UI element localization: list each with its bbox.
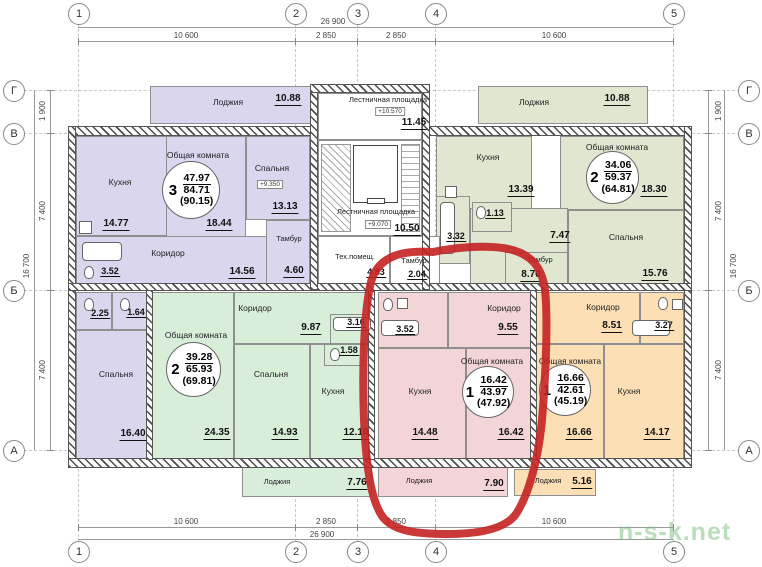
lodge-area: 5.16 — [571, 476, 592, 489]
living-area: 16.42 — [497, 427, 524, 440]
lodge-label: Лоджия — [519, 97, 549, 107]
living-area: 16.66 — [565, 427, 592, 440]
corridor-area: 7.47 — [549, 230, 570, 243]
axis-label: 1 — [76, 8, 82, 20]
tambour-area: 2.04 — [407, 269, 427, 280]
axis-col-1: 1 — [68, 3, 90, 25]
axis-row-g: Г — [3, 80, 25, 102]
stamp-living: 47.97 — [183, 173, 211, 185]
toilet-icon — [84, 266, 94, 279]
bathroom-area: 3.27 — [654, 320, 674, 331]
wall — [68, 283, 692, 291]
wc-area: 1.13 — [485, 208, 505, 219]
apartment-stamp-apt1-right: 1 16.6642.61(45.19) — [539, 364, 591, 416]
dim-seg: 10 600 — [172, 517, 200, 526]
corridor-area: 14.56 — [228, 266, 255, 279]
wall — [68, 458, 692, 468]
axis-label: А — [10, 445, 17, 457]
dimension-line — [78, 527, 673, 528]
room-bedroom2-apt3 — [76, 330, 150, 460]
stamp-living: 16.42 — [480, 375, 508, 387]
axis-col-3: 3 — [347, 541, 369, 563]
dim-tick — [295, 38, 296, 45]
dim-tick — [47, 290, 54, 291]
axis-col-5: 5 — [663, 3, 685, 25]
bath2-area: 1.64 — [126, 307, 146, 318]
lodge-area: 7.90 — [483, 478, 504, 491]
dim-seg: 2 850 — [314, 517, 338, 526]
stamp-living: 16.66 — [557, 373, 585, 385]
tambour-label: Тамбур — [276, 234, 301, 243]
stamp-rooms: 1 — [543, 382, 551, 399]
axis-row-b: Б — [738, 280, 760, 302]
tambour-label: Тамбур — [527, 255, 552, 264]
stair-tech-room — [318, 236, 390, 286]
wc-area: 2.25 — [90, 308, 110, 319]
living-label: Общая комната — [167, 150, 229, 160]
wc-area: 1.58 — [339, 345, 359, 356]
axis-label: Г — [746, 85, 752, 97]
dim-tick — [435, 524, 436, 531]
axis-label: 4 — [433, 8, 439, 20]
axis-label: Б — [745, 285, 752, 297]
stamp-with-lodge: (90.15) — [180, 196, 213, 207]
sink-icon — [672, 299, 683, 310]
dim-tick — [673, 38, 674, 45]
dim-total-top: 26 900 — [319, 17, 347, 26]
dimension-line — [78, 41, 673, 42]
axis-label: 5 — [671, 8, 677, 20]
wall — [310, 84, 430, 93]
wall — [68, 126, 76, 468]
dim-seg: 7 400 — [714, 201, 723, 221]
axis-label: 3 — [355, 8, 361, 20]
corridor-label: Коридор — [487, 303, 521, 313]
lodge-area: 10.88 — [274, 93, 301, 106]
room-corridor-apt1c — [448, 292, 536, 348]
kitchen-label: Кухня — [618, 386, 641, 396]
axis-row-a: А — [738, 440, 760, 462]
stamp-rooms: 3 — [169, 182, 177, 199]
toilet-icon — [383, 298, 393, 311]
dim-seg: 1 900 — [714, 101, 723, 121]
stamp-with-lodge: (69.81) — [183, 376, 216, 387]
axis-col-2: 2 — [285, 3, 307, 25]
dim-tick — [78, 524, 79, 531]
dimension-line — [708, 90, 709, 450]
stamp-rooms: 2 — [590, 169, 598, 186]
upper-landing-label: Лестничная площадка — [349, 95, 427, 104]
bathtub-icon — [82, 242, 122, 261]
elevation-badge: +9.350 — [257, 180, 283, 189]
dim-seg: 10 600 — [540, 517, 568, 526]
kitchen-area: 14.17 — [643, 427, 670, 440]
dim-total-right: 16 700 — [729, 254, 738, 278]
bathroom-area: 3.32 — [446, 231, 466, 242]
tambour-area: 8.70 — [520, 269, 541, 282]
floor-plan: 1 2 3 4 5 1 2 3 4 5 Г В Б А Г В Б А 26 9… — [0, 0, 762, 567]
dim-tick — [705, 290, 712, 291]
axis-row-v: В — [3, 123, 25, 145]
axis-label: А — [745, 445, 752, 457]
stamp-with-lodge: (47.92) — [477, 398, 510, 409]
wall — [530, 290, 537, 460]
bathtub-icon — [440, 202, 455, 254]
stamp-total: 65.93 — [186, 364, 212, 375]
axis-label: В — [745, 128, 752, 140]
dimension-line — [50, 90, 51, 450]
axis-label: Б — [10, 285, 17, 297]
lower-landing-label: Лестничная площадка — [337, 207, 415, 216]
dim-seg: 2 850 — [384, 31, 408, 40]
elevation-badge: +10.570 — [375, 107, 405, 116]
lodge-label: Лоджия — [213, 97, 243, 107]
axis-col-1: 1 — [68, 541, 90, 563]
stamp-with-lodge: (45.19) — [554, 396, 587, 407]
living-label: Общая комната — [461, 356, 523, 366]
dim-tick — [705, 133, 712, 134]
tech-room-label: Тех.помещ. — [335, 252, 375, 261]
lower-landing-area: 10.50 — [393, 223, 420, 236]
bedroom2-label: Спальня — [99, 369, 133, 379]
corridor-area: 8.51 — [601, 320, 622, 333]
kitchen-label: Кухня — [409, 386, 432, 396]
bathroom-area: 3.52 — [100, 266, 120, 277]
sink-icon — [79, 221, 92, 234]
kitchen-label: Кухня — [477, 152, 500, 162]
axis-col-4: 4 — [425, 3, 447, 25]
corridor-area: 9.87 — [300, 322, 321, 335]
dim-seg: 10 600 — [540, 31, 568, 40]
dim-tick — [295, 524, 296, 531]
dim-seg: 7 400 — [38, 360, 47, 380]
bedroom-label: Спальня — [254, 369, 288, 379]
dim-total-left: 16 700 — [22, 254, 31, 278]
axis-col-4: 4 — [425, 541, 447, 563]
axis-col-3: 3 — [347, 3, 369, 25]
axis-label: В — [10, 128, 17, 140]
room-kitchen-apt1r — [604, 344, 684, 460]
dim-tick — [357, 524, 358, 531]
kitchen-area: 13.39 — [507, 184, 534, 197]
dimension-line — [34, 90, 35, 450]
dim-tick — [435, 38, 436, 45]
living-area: 18.44 — [205, 218, 232, 231]
axis-row-b: Б — [3, 280, 25, 302]
corridor-label: Коридор — [151, 248, 185, 258]
dim-tick — [357, 38, 358, 45]
bathroom-area: 3.16 — [346, 317, 366, 328]
tech-room-area: 4.83 — [366, 267, 386, 278]
dim-seg: 2 850 — [314, 31, 338, 40]
dim-seg: 2 850 — [384, 517, 408, 526]
axis-label: 4 — [433, 546, 439, 558]
wall — [68, 126, 314, 136]
bedroom-area: 14.93 — [271, 427, 298, 440]
dim-tick — [78, 38, 79, 45]
stamp-rooms: 1 — [466, 384, 474, 401]
dim-tick — [47, 90, 54, 91]
living-area: 24.35 — [203, 427, 230, 440]
stamp-with-lodge: (64.81) — [602, 184, 635, 195]
watermark: n-s-k.net — [618, 518, 731, 547]
bedroom-label: Спальня — [255, 163, 289, 173]
dim-total-bottom: 26 900 — [308, 530, 336, 539]
apartment-stamp-apt2-right: 2 34.0659.37(64.81) — [586, 151, 639, 204]
dim-seg: 1 900 — [38, 101, 47, 121]
axis-label: 2 — [293, 546, 299, 558]
dimension-line — [724, 90, 725, 450]
corridor-label: Коридор — [238, 303, 272, 313]
corridor-label: Коридор — [586, 302, 620, 312]
living-label: Общая комната — [165, 330, 227, 340]
toilet-icon — [658, 297, 668, 310]
axis-label: 2 — [293, 8, 299, 20]
kitchen-area: 14.77 — [102, 218, 129, 231]
wall — [684, 126, 692, 468]
tambour-label: Тамбур — [401, 256, 426, 265]
axis-label: 1 — [76, 546, 82, 558]
corridor-area: 9.55 — [497, 322, 518, 335]
bedroom2-area: 16.40 — [119, 428, 146, 441]
lodge-label: Лоджия — [535, 476, 562, 485]
upper-landing-area: 11.45 — [401, 117, 427, 130]
dim-seg: 10 600 — [172, 31, 200, 40]
room-corridor-apt1r — [536, 292, 640, 344]
axis-row-a: А — [3, 440, 25, 462]
stamp-rooms: 2 — [171, 361, 179, 378]
room-kitchen-apt1c — [378, 348, 466, 460]
axis-row-g: Г — [738, 80, 760, 102]
apartment-stamp-apt1-center: 1 16.4243.97(47.92) — [462, 366, 514, 418]
lodge-label: Лоджия — [406, 476, 433, 485]
stamp-total: 59.37 — [605, 172, 631, 183]
sink-icon — [397, 298, 408, 309]
kitchen-area: 14.48 — [411, 427, 438, 440]
elevation-badge: +9.070 — [365, 220, 391, 229]
dim-tick — [47, 450, 54, 451]
dim-tick — [705, 450, 712, 451]
apartment-stamp-apt3: 3 47.9784.71(90.15) — [162, 161, 220, 219]
living-area: 18.30 — [640, 184, 667, 197]
bedroom-area: 13.13 — [271, 201, 298, 214]
dimension-line — [78, 539, 673, 540]
axis-col-2: 2 — [285, 541, 307, 563]
stairs-flight — [401, 144, 420, 232]
axis-label: Г — [11, 85, 17, 97]
elevator-icon — [353, 145, 398, 203]
bedroom-label: Спальня — [609, 232, 643, 242]
kitchen-label: Кухня — [322, 386, 345, 396]
lodge-label: Лоджия — [264, 477, 291, 486]
stairs-flight — [321, 144, 351, 232]
bedroom-area: 15.76 — [641, 268, 668, 281]
kitchen-label: Кухня — [109, 177, 132, 187]
dim-seg: 7 400 — [714, 360, 723, 380]
sink-icon — [445, 186, 457, 198]
dimension-line — [78, 27, 673, 28]
wall — [310, 84, 318, 290]
dim-seg: 7 400 — [38, 201, 47, 221]
lodge-area: 10.88 — [603, 93, 630, 106]
wall — [428, 126, 692, 136]
bathroom-area: 3.52 — [395, 324, 415, 335]
lodge-area: 7.76 — [346, 477, 367, 490]
dim-tick — [705, 90, 712, 91]
wall — [146, 290, 153, 460]
apartment-stamp-apt2-left: 2 39.2865.93(69.81) — [166, 342, 221, 397]
axis-label: 5 — [671, 546, 677, 558]
kitchen-area: 12.10 — [342, 427, 369, 440]
axis-label: 3 — [355, 546, 361, 558]
tambour-area: 4.60 — [283, 265, 304, 278]
room-bedroom-apt2l — [234, 344, 310, 460]
axis-row-v: В — [738, 123, 760, 145]
dim-tick — [47, 133, 54, 134]
